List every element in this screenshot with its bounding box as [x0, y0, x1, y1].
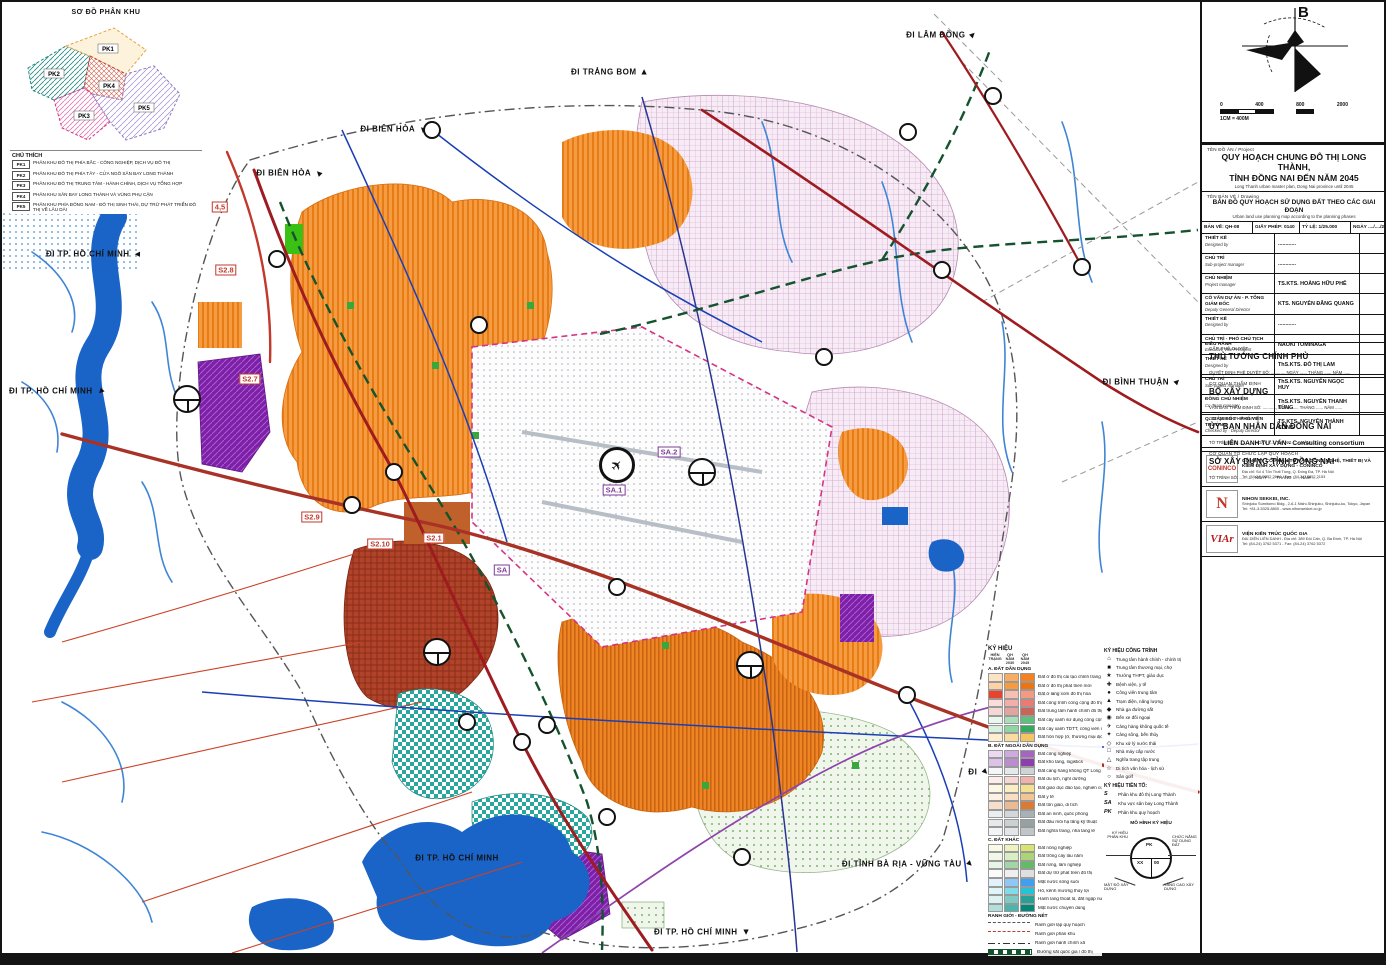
- legend-symbol-row: ■Trung tâm thương mại, chợ: [1104, 663, 1198, 671]
- legend-swatch: [1020, 819, 1035, 828]
- legend-row-label: Đất giáo dục đào tạo, nghiên cứu: [1038, 786, 1102, 791]
- legend-symbol-label: Nhà máy cấp nước: [1116, 749, 1155, 754]
- legend-swatch: [988, 673, 1003, 682]
- legend-swatch: [1004, 793, 1019, 802]
- scale-ticks: 04008002000: [1220, 102, 1348, 108]
- section-authority: SỞ XÂY DỰNG TỈNH ĐỒNG NAI: [1209, 457, 1379, 466]
- legend-row: Đất cảng hàng không QT Long Thành: [988, 767, 1102, 776]
- khu-x-l-n-c-th-i-icon: ◇: [1104, 740, 1114, 747]
- svg-text:PK3: PK3: [78, 114, 90, 120]
- legend-swatch: [988, 852, 1003, 861]
- legend-row-label: Đất nghĩa trang, nhà tang lễ: [1038, 829, 1095, 834]
- company-row: VIArVIỆN KIẾN TRÚC QUỐC GIAĐẠI DIỆN LIÊN…: [1202, 522, 1386, 557]
- legend-swatch: [1004, 750, 1019, 759]
- prefix-diagram: MÔ HÌNH KÝ HIỆU PK XX 00 KÝ HIỆU PHÂN KH…: [1104, 821, 1198, 907]
- inset-legend-row: PK5PHÂN KHU PHÍA ĐÔNG NAM - ĐÔ THỊ SINH …: [12, 202, 200, 213]
- legend-symbol-row: ▲Trạm điện, năng lượng: [1104, 697, 1198, 705]
- legend-row: Đất tôn giáo, di tích: [988, 801, 1102, 810]
- legend-swatch: [1020, 707, 1035, 716]
- legend-swatch: [988, 904, 1003, 913]
- diagram-label-bottom-left: MẬT ĐỘ XÂY DỰNG: [1104, 883, 1134, 891]
- scale-tick: 800: [1296, 102, 1304, 108]
- legend-swatch: [1004, 673, 1019, 682]
- legend-row: Đất trung tâm hành chính đô thị: [988, 707, 1102, 716]
- c-ng-s-ng-b-n-th-y-icon: ✦: [1104, 731, 1114, 738]
- staff-name: KTS. NGUYỄN ĐĂNG QUANG: [1275, 294, 1360, 314]
- legend-row-label: Hành lang thoát lũ, đất ngập nước: [1038, 897, 1102, 902]
- legend-swatch: [1020, 725, 1035, 734]
- legend-swatch: [1020, 827, 1035, 836]
- legend-swatch: [988, 776, 1003, 785]
- info-permit: GIẤY PHÉP: 0140: [1253, 222, 1300, 233]
- prefix-symbol: PK: [1104, 809, 1118, 815]
- legend-swatch: [1020, 682, 1035, 691]
- section-label: CƠ QUAN THẨM ĐỊNH: [1209, 381, 1379, 386]
- legend-swatch: [988, 707, 1003, 716]
- legend-swatch: [988, 810, 1003, 819]
- legend-swatch: [988, 699, 1003, 708]
- legend-symbol-label: Trường THPT, giáo dục: [1116, 673, 1164, 678]
- legend-swatch: [1020, 758, 1035, 767]
- legend-row: Mặt nước chuyên dùng: [988, 904, 1102, 913]
- legend-line-row: Ranh giới phân khu: [988, 929, 1102, 938]
- legend-swatch: [1020, 767, 1035, 776]
- prefix-label: Phân khu đô thị Long Thành: [1118, 792, 1176, 797]
- legend-group-title: A. ĐẤT DÂN DỤNG: [988, 667, 1102, 672]
- company-contact: Tel: +81-3-5325-8800 - www.nihonsekkei.c…: [1242, 507, 1382, 511]
- legend-symbol-row: ✈Cảng hàng không quốc tế: [1104, 722, 1198, 730]
- company-text: VIỆN KIẾN TRÚC QUỐC GIAĐẠI DIỆN LIÊN DAN…: [1242, 532, 1382, 547]
- legend-swatch: [988, 690, 1003, 699]
- legend-row-label: Đất nông nghiệp: [1038, 846, 1072, 851]
- scale-tick: 0: [1220, 102, 1223, 108]
- legend-row-label: Đất ở đô thị cải tạo chỉnh trang: [1038, 675, 1101, 680]
- inset-zone-desc: PHÂN KHU ĐÔ THỊ PHÍA TÂY - CỬA NGÕ SÂN B…: [33, 171, 173, 176]
- legend-swatch: [1020, 844, 1035, 853]
- legend-symbol-label: Sân golf: [1116, 774, 1133, 779]
- legend-row: Đất hỗn hợp (ở, thương mại dịch vụ): [988, 733, 1102, 742]
- legend-row: Hành lang thoát lũ, đất ngập nước: [988, 895, 1102, 904]
- inset-legend: CHÚ THÍCH PK1PHÂN KHU ĐÔ THỊ PHÍA BẮC - …: [10, 150, 202, 213]
- inset-zone-desc: PHÂN KHU SÂN BAY LONG THÀNH VÀ VÙNG PHỤ …: [33, 192, 153, 197]
- legend-swatch: [1004, 878, 1019, 887]
- legend-swatch: [1020, 810, 1035, 819]
- legend-row-label: Đất công trình công cộng đô thị: [1038, 701, 1102, 706]
- inset-legend-rows: PK1PHÂN KHU ĐÔ THỊ PHÍA BẮC - CÔNG NGHIỆ…: [12, 160, 200, 213]
- legend-swatch: [1004, 776, 1019, 785]
- legend-swatch: [1004, 827, 1019, 836]
- staff-role-cell: THIẾT KẾDesigned by: [1202, 234, 1275, 253]
- legend-row: Đất rừng, lâm nghiệp: [988, 861, 1102, 870]
- scale-note: 1CM = 400M: [1220, 116, 1370, 122]
- legend-col-hientrang: HIỆN TRẠNG: [988, 653, 1002, 665]
- legend-row: Đất an ninh, quốc phòng: [988, 810, 1102, 819]
- legend-swatch: [1004, 707, 1019, 716]
- legend-line-label: Ranh giới phân khu: [1035, 932, 1075, 937]
- company-text: NIHON SEKKEI, INC.Shinjuku Sumitomo Bldg…: [1242, 497, 1382, 512]
- section-label: CƠ QUAN PHÊ DUYỆT: [1209, 416, 1379, 421]
- legend-swatch: [1004, 690, 1019, 699]
- legend-swatch: [1004, 810, 1019, 819]
- staff-role-en: Sub-project manager: [1205, 262, 1271, 267]
- legend-groups: A. ĐẤT DÂN DỤNGĐất ở đô thị cải tạo chỉn…: [988, 667, 1102, 912]
- tr-ng-thpt-gi-o-d-c-icon: ★: [1104, 672, 1114, 679]
- legend-symbol-label: Cảng sông, bến thủy: [1116, 732, 1158, 737]
- inset-zoning-diagram: SƠ ĐỒ PHÂN KHU PK1 PK2 PK3 PK4 PK5 CHÚ T: [10, 6, 202, 214]
- legend-swatch: [988, 716, 1003, 725]
- ngh-a-trang-t-p-trung-icon: △: [1104, 756, 1114, 763]
- section-note: TỜ TRÌNH SỐ: ..........., NGÀY ...... TH…: [1209, 440, 1379, 445]
- staff-name: ............: [1275, 234, 1360, 253]
- legend-line-row: Ranh giới hành chính xã: [988, 938, 1102, 947]
- legend-swatch: [1004, 869, 1019, 878]
- staff-name: TS.KTS. HOÀNG HỮU PHÊ: [1275, 274, 1360, 293]
- legend-row: Đất công trình công cộng đô thị: [988, 699, 1102, 708]
- legend-swatch: [1004, 733, 1019, 742]
- legend-swatch: [988, 784, 1003, 793]
- legend-swatch: [1020, 887, 1035, 896]
- legend-swatch: [988, 869, 1003, 878]
- legend-swatch: [988, 793, 1003, 802]
- legend-symbol-label: Bệnh viện, y tế: [1116, 682, 1146, 687]
- prefix-diagram-circle: PK XX 00: [1130, 837, 1172, 879]
- legend-swatch: [1020, 793, 1035, 802]
- legend-symbol-row: ✦Cảng sông, bến thủy: [1104, 731, 1198, 739]
- legend-row-label: Đất y tế: [1038, 795, 1054, 800]
- drawing-info-row: BẢN VẼ: QH-08 GIẤY PHÉP: 0140 TỶ LỆ: 1/2…: [1202, 221, 1386, 234]
- legend-row-label: Đất cây xanh TDTT, công viên chuyên đề: [1038, 727, 1102, 732]
- legend-swatch: [1020, 733, 1035, 742]
- nh-m-y-c-p-n-c-icon: □: [1104, 748, 1114, 754]
- legend-swatch: [1004, 682, 1019, 691]
- legend-swatch: [988, 878, 1003, 887]
- prefix-label: Phân khu quy hoạch: [1118, 810, 1160, 815]
- legend-symbol-row: ◉Bến xe đối ngoại: [1104, 714, 1198, 722]
- staff-role-vi: CỐ VẤN DỰ ÁN - P. TỔNG GIÁM ĐỐC: [1205, 296, 1271, 307]
- staff-role-cell: CHỦ NHIỆMProject manager: [1202, 274, 1275, 293]
- staff-row: CHỦ NHIỆMProject managerTS.KTS. HOÀNG HỮ…: [1202, 274, 1386, 294]
- legend-lines-title: RANH GIỚI - ĐƯỜNG NÉT: [988, 914, 1102, 919]
- legend-symbol-row: ●Công viên trung tâm: [1104, 689, 1198, 697]
- trung-t-m-h-nh-ch-nh-ch-nh-tr--icon: ⌂: [1104, 656, 1114, 662]
- legend-row-label: Đất hỗn hợp (ở, thương mại dịch vụ): [1038, 735, 1102, 740]
- legend-row: Mặt nước sông suối: [988, 878, 1102, 887]
- info-scale: TỶ LỆ: 1/25.000: [1300, 222, 1351, 233]
- legend-landuse: KÝ HIỆU HIỆN TRẠNG QH NĂM 2030 QH NĂM 20…: [988, 646, 1102, 956]
- scale-tick: 2000: [1337, 102, 1348, 108]
- legend-row: Đất cây xanh TDTT, công viên chuyên đề: [988, 725, 1102, 734]
- legend-swatch: [1004, 784, 1019, 793]
- legend-swatch: [988, 895, 1003, 904]
- staff-signature-cell: [1360, 294, 1386, 314]
- info-sheet-number: BẢN VẼ: QH-08: [1202, 222, 1253, 233]
- title-block-panel: B 04008002000 1CM = 400M CẤP PHÊ DUYỆTTH…: [1200, 2, 1386, 963]
- inset-zone-id: PK1: [12, 160, 30, 169]
- legend-row: Đất cây xanh sử dụng công cộng: [988, 716, 1102, 725]
- b-nh-vi-n-y-t--icon: ✚: [1104, 681, 1114, 688]
- staff-name: ............: [1275, 315, 1360, 334]
- staff-row: THIẾT KẾDesigned by............: [1202, 234, 1386, 254]
- diagram-center-top: PK: [1146, 842, 1152, 847]
- drawing-title: BẢN ĐỒ QUY HOẠCH SỬ DỤNG ĐẤT THEO CÁC GI…: [1207, 199, 1381, 214]
- legend-symbol-label: Trạm điện, năng lượng: [1116, 699, 1163, 704]
- legend-line-sample: [988, 949, 1032, 955]
- legend-row-label: Mặt nước sông suối: [1038, 880, 1079, 885]
- svg-text:PK2: PK2: [48, 72, 60, 78]
- legend-symbol-label: Khu xử lý nước thải: [1116, 741, 1156, 746]
- legend-row: Đất ở đô thị phát triển mới: [988, 682, 1102, 691]
- legend-row: Đất ở làng xóm đô thị hóa: [988, 690, 1102, 699]
- legend-symbol-row: △Nghĩa trang tập trung: [1104, 756, 1198, 764]
- legend-line-label: Đường sắt quốc gia / đô thị: [1037, 950, 1093, 955]
- section-note: QUYẾT ĐỊNH PHÊ DUYỆT SỐ: ..........., NG…: [1209, 370, 1379, 375]
- legend-line-sample: [988, 943, 1030, 944]
- scale-segments: [1220, 109, 1370, 114]
- legend-prefix-row: PKPhân khu quy hoạch: [1104, 808, 1198, 817]
- project-title-line2: TỈNH ĐỒNG NAI ĐẾN NĂM 2045: [1207, 173, 1381, 183]
- legend-col-2030: QH NĂM 2030: [1003, 653, 1017, 665]
- legend-row: Hồ, kênh mương thủy lợi: [988, 887, 1102, 896]
- diagram-center-right: 00: [1154, 860, 1159, 865]
- staff-role-en: Project manager: [1205, 282, 1271, 287]
- legend-swatch: [988, 887, 1003, 896]
- legend-swatch: [988, 827, 1003, 836]
- staff-name: ............: [1275, 254, 1360, 273]
- legend-swatch: [1020, 904, 1035, 913]
- diagram-label-bottom-right: TẦNG CAO XÂY DỰNG: [1164, 883, 1198, 891]
- diagram-label-left: KÝ HIỆU PHÂN KHU: [1104, 831, 1128, 839]
- svg-text:PK1: PK1: [102, 47, 114, 53]
- svg-text:PK5: PK5: [138, 106, 150, 112]
- legend-swatch: [1020, 861, 1035, 870]
- legend-line-label: Ranh giới lập quy hoạch: [1035, 923, 1085, 928]
- inset-zone-desc: PHÂN KHU ĐÔ THỊ PHÍA BẮC - CÔNG NGHIỆP, …: [33, 160, 170, 165]
- company-logo: N: [1206, 490, 1238, 518]
- legend-symbol-row: ☆Di tích văn hóa - lịch sử: [1104, 764, 1198, 772]
- legend-row-label: Đất trồng cây lâu năm: [1038, 854, 1083, 859]
- legend-swatch: [1004, 904, 1019, 913]
- inset-zone-id: PK2: [12, 171, 30, 180]
- legend-swatch: [1004, 844, 1019, 853]
- legend-symbol-label: Nhà ga đường sắt: [1116, 707, 1153, 712]
- legend-symbol-row: ○Sân golf: [1104, 772, 1198, 780]
- inset-zone-desc: PHÂN KHU ĐÔ THỊ TRUNG TÂM - HÀNH CHÍNH, …: [33, 181, 182, 186]
- legend-swatch: [988, 767, 1003, 776]
- legend-row: Đất đầu mối hạ tầng kỹ thuật: [988, 818, 1102, 827]
- legend-row: Đất nghĩa trang, nhà tang lễ: [988, 827, 1102, 836]
- legend-symbols-panel: KÝ HIỆU CÔNG TRÌNH ⌂Trung tâm hành chính…: [1104, 646, 1198, 907]
- trung-t-m-th-ng-m-i-ch--icon: ■: [1104, 665, 1114, 671]
- staff-signature-cell: [1360, 315, 1386, 334]
- di-t-ch-v-n-h-a-l-ch-s--icon: ☆: [1104, 765, 1114, 772]
- drawing-section: TÊN BẢN VẼ / Drawing BẢN ĐỒ QUY HOẠCH SỬ…: [1202, 191, 1386, 221]
- inset-legend-row: PK4PHÂN KHU SÂN BAY LONG THÀNH VÀ VÙNG P…: [12, 192, 200, 201]
- legend-row-label: Hồ, kênh mương thủy lợi: [1038, 889, 1089, 894]
- legend-prefix-rows: SPhân khu đô thị Long ThànhSAKhu vực sân…: [1104, 790, 1198, 817]
- prefix-diagram-title: MÔ HÌNH KÝ HIỆU: [1104, 821, 1198, 826]
- section-label: CƠ QUAN TỔ CHỨC LẬP QUY HOẠCH: [1209, 451, 1379, 456]
- c-ng-vi-n-trung-t-m-icon: ●: [1104, 690, 1114, 696]
- staff-role-en: Designed by: [1205, 322, 1271, 327]
- company-contact: Tel: (84-24) 3762 5371 - Fax: (84-24) 37…: [1242, 542, 1382, 546]
- legend-line-sample: [988, 931, 1030, 936]
- tr-m-i-n-n-ng-l-ng-icon: ▲: [1104, 698, 1114, 704]
- legend-symbol-label: Trung tâm hành chính - chính trị: [1116, 657, 1181, 662]
- legend-swatch: [988, 861, 1003, 870]
- legend-swatch: [1020, 776, 1035, 785]
- inset-legend-title: CHÚ THÍCH: [12, 153, 200, 159]
- staff-signature-cell: [1360, 254, 1386, 273]
- legend-swatch: [988, 733, 1003, 742]
- section-authority: THỦ TƯỚNG CHÍNH PHỦ: [1209, 352, 1379, 361]
- c-ng-h-ng-kh-ng-qu-c-t--icon: ✈: [1104, 723, 1114, 730]
- legend-symbol-row: ⌂Trung tâm hành chính - chính trị: [1104, 655, 1198, 663]
- legend-swatch: [1004, 699, 1019, 708]
- title-block-section: CƠ QUAN THẨM ĐỊNHBỘ XÂY DỰNGVĂN BẢN THẨM…: [1202, 377, 1386, 412]
- title-block-section: CẤP PHÊ DUYỆTTHỦ TƯỚNG CHÍNH PHỦQUYẾT ĐỊ…: [1202, 342, 1386, 377]
- legend-row: Đất kho tàng, logistics: [988, 758, 1102, 767]
- legend-row-label: Đất cây xanh sử dụng công cộng: [1038, 718, 1102, 723]
- prefix-symbol: S: [1104, 791, 1118, 797]
- legend-prefix-row: SAKhu vực sân bay Long Thành: [1104, 799, 1198, 808]
- section-label: CẤP PHÊ DUYỆT: [1209, 346, 1379, 351]
- info-date: NGÀY ..../..../202...: [1351, 222, 1386, 233]
- legend-swatch: [1004, 725, 1019, 734]
- staff-role-en: Designed by: [1205, 242, 1271, 247]
- legend-symbol-row: □Nhà máy cấp nước: [1104, 747, 1198, 755]
- sheet-bottom-border: [2, 953, 1384, 963]
- legend-row-label: Đất tôn giáo, di tích: [1038, 803, 1078, 808]
- legend-prefix-row: SPhân khu đô thị Long Thành: [1104, 790, 1198, 799]
- legend-row: Đất công nghiệp: [988, 750, 1102, 759]
- section-note: TỜ TRÌNH SỐ: ..........., NGÀY ...... TH…: [1209, 475, 1379, 480]
- legend-swatch: [1004, 767, 1019, 776]
- nh-ga-ng-s-t-icon: ◆: [1104, 706, 1114, 713]
- staff-role-en: Deputy General Director: [1205, 307, 1271, 312]
- legend-swatch: [1004, 758, 1019, 767]
- inset-map-drawing: PK1 PK2 PK3 PK4 PK5: [14, 16, 198, 148]
- legend-symbol-rows: ⌂Trung tâm hành chính - chính trị■Trung …: [1104, 655, 1198, 781]
- drawing-title-en: Urban land use planning map according to…: [1207, 214, 1381, 219]
- staff-row: THIẾT KẾDesigned by............: [1202, 315, 1386, 335]
- legend-row-label: Đất trung tâm hành chính đô thị: [1038, 709, 1102, 714]
- inset-zone-desc: PHÂN KHU PHÍA ĐÔNG NAM - ĐÔ THỊ SINH THÁ…: [33, 202, 200, 213]
- staff-row: CHỦ TRÌSub-project manager............: [1202, 254, 1386, 274]
- staff-row: CỐ VẤN DỰ ÁN - P. TỔNG GIÁM ĐỐCDeputy Ge…: [1202, 294, 1386, 315]
- legend-row: Đất du lịch, nghỉ dưỡng: [988, 775, 1102, 784]
- title-block-section: CƠ QUAN TỔ CHỨC LẬP QUY HOẠCHSỞ XÂY DỰNG…: [1202, 447, 1386, 482]
- legend-symbol-label: Di tích văn hóa - lịch sử: [1116, 766, 1164, 771]
- legend-symbol-label: Bến xe đối ngoại: [1116, 715, 1150, 720]
- legend-row: Đất nông nghiệp: [988, 844, 1102, 853]
- legend-symbols-title: KÝ HIỆU CÔNG TRÌNH: [1104, 648, 1198, 654]
- legend-row-label: Đất du lịch, nghỉ dưỡng: [1038, 777, 1086, 782]
- section-note: VĂN BẢN THẨM ĐỊNH SỐ: ..........., NGÀY …: [1209, 405, 1379, 410]
- legend-symbol-label: Trung tâm thương mại, chợ: [1116, 665, 1172, 670]
- legend-swatch: [1004, 861, 1019, 870]
- legend-group-title: B. ĐẤT NGOÀI DÂN DỤNG: [988, 744, 1102, 749]
- legend-swatch: [988, 682, 1003, 691]
- legend-line-rows: Ranh giới lập quy hoạchRanh giới phân kh…: [988, 920, 1102, 956]
- b-n-xe-i-ngo-i-icon: ◉: [1104, 714, 1114, 721]
- legend-swatch: [988, 844, 1003, 853]
- nihon-sekkei-logo-icon: N: [1216, 495, 1228, 513]
- project-title-line1: QUY HOẠCH CHUNG ĐÔ THỊ LONG THÀNH,: [1207, 152, 1381, 173]
- legend-line-label: Ranh giới hành chính xã: [1035, 941, 1085, 946]
- legend-swatch: [1004, 895, 1019, 904]
- legend-row: Đất y tế: [988, 793, 1102, 802]
- staff-role-cell: CHỦ TRÌSub-project manager: [1202, 254, 1275, 273]
- legend-swatch: [988, 750, 1003, 759]
- staff-role-cell: THIẾT KẾDesigned by: [1202, 315, 1275, 334]
- legend-swatch: [1020, 895, 1035, 904]
- legend-symbol-label: Cảng hàng không quốc tế: [1116, 724, 1169, 729]
- plan-sheet: ĐI TRẢNG BOM▲ĐI LÂM ĐỒNG▲ĐI BIÊN HÒA▲ĐI …: [0, 0, 1386, 965]
- legend-swatch: [988, 758, 1003, 767]
- legend-swatch: [988, 801, 1003, 810]
- legend-row-label: Đất dự trữ phát triển đô thị: [1038, 871, 1092, 876]
- title-block-sections: CẤP PHÊ DUYỆTTHỦ TƯỚNG CHÍNH PHỦQUYẾT ĐỊ…: [1202, 342, 1386, 482]
- legend-swatch: [1020, 852, 1035, 861]
- legend-swatch: [1020, 750, 1035, 759]
- legend-prefix-title: KÝ HIỆU TIỀN TỐ:: [1104, 783, 1198, 789]
- north-arrow: [1202, 2, 1386, 98]
- project-title-en: Long Thanh urban master plan, Dong Nai p…: [1207, 184, 1381, 189]
- compass-block: B 04008002000 1CM = 400M: [1202, 2, 1386, 144]
- legend-row-label: Đất kho tàng, logistics: [1038, 760, 1083, 765]
- legend-row-label: Đất ở làng xóm đô thị hóa: [1038, 692, 1091, 697]
- diagram-center-left: XX: [1137, 860, 1143, 865]
- viar-logo-icon: VIAr: [1210, 533, 1233, 545]
- legend-symbol-row: ◆Nhà ga đường sắt: [1104, 705, 1198, 713]
- legend-swatch: [1020, 699, 1035, 708]
- legend-swatch: [1020, 878, 1035, 887]
- legend-column-headers: HIỆN TRẠNG QH NĂM 2030 QH NĂM 2045: [988, 653, 1102, 665]
- inset-title: SƠ ĐỒ PHÂN KHU: [10, 6, 202, 16]
- legend-swatch: [1004, 801, 1019, 810]
- inset-zone-id: PK3: [12, 181, 30, 190]
- legend-row-label: Mặt nước chuyên dùng: [1038, 906, 1085, 911]
- company-row: NNIHON SEKKEI, INC.Shinjuku Sumitomo Bld…: [1202, 487, 1386, 522]
- legend-row: Đất ở đô thị cải tạo chỉnh trang: [988, 673, 1102, 682]
- legend-swatch: [988, 725, 1003, 734]
- svg-text:PK4: PK4: [103, 84, 115, 90]
- scale-tick: 400: [1255, 102, 1263, 108]
- legend-row-label: Đất an ninh, quốc phòng: [1038, 812, 1088, 817]
- legend-swatch: [1004, 852, 1019, 861]
- legend-title: KÝ HIỆU: [988, 646, 1102, 652]
- legend-swatch: [988, 819, 1003, 828]
- legend-line-row: Ranh giới lập quy hoạch: [988, 920, 1102, 929]
- legend-line-sample: [988, 922, 1030, 927]
- inset-zone-id: PK5: [12, 202, 30, 211]
- legend-swatch: [1020, 869, 1035, 878]
- company-logo: VIAr: [1206, 525, 1238, 553]
- staff-signature-cell: [1360, 274, 1386, 293]
- legend-row: Đất giáo dục đào tạo, nghiên cứu: [988, 784, 1102, 793]
- legend-swatch: [1004, 716, 1019, 725]
- legend-group-title: C. ĐẤT KHÁC: [988, 838, 1102, 843]
- legend-row-label: Đất đầu mối hạ tầng kỹ thuật: [1038, 820, 1097, 825]
- inset-zone-id: PK4: [12, 192, 30, 201]
- legend-symbol-label: Công viên trung tâm: [1116, 690, 1157, 695]
- legend-swatch: [1020, 784, 1035, 793]
- s-n-golf-icon: ○: [1104, 774, 1114, 780]
- legend-symbol-row: ★Trường THPT, giáo dục: [1104, 672, 1198, 680]
- legend-row: Đất dự trữ phát triển đô thị: [988, 869, 1102, 878]
- legend-swatch: [1020, 716, 1035, 725]
- legend-swatch: [1020, 801, 1035, 810]
